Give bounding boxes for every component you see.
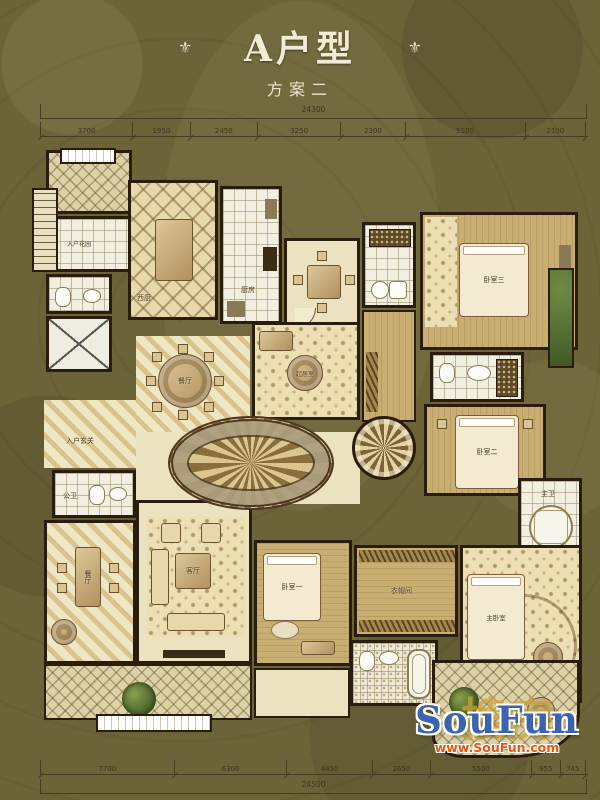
- chair: [317, 251, 327, 261]
- toilet: [439, 363, 455, 383]
- sofa: [167, 613, 225, 631]
- room-dining-long: 餐厅: [44, 520, 136, 664]
- dimension-value: 7700: [40, 760, 174, 775]
- balcony-middle: [254, 668, 350, 718]
- room-closet: 衣帽间: [354, 545, 458, 637]
- room-label: 西厨: [137, 293, 151, 303]
- room-kitchen: 厨房: [220, 186, 282, 324]
- wardrobe: [359, 550, 455, 562]
- chair: [204, 352, 214, 362]
- dimension-value: 2450: [190, 122, 257, 137]
- room-label: 衣帽间: [391, 586, 412, 596]
- range: [263, 247, 277, 271]
- watermark-logo: SouFun: [412, 698, 582, 742]
- room-label: 公卫: [63, 491, 77, 501]
- chair: [152, 352, 162, 362]
- dining-round-table: 餐厅: [158, 354, 212, 408]
- nightstand: [523, 419, 533, 429]
- corner-feature: [51, 619, 77, 645]
- room-label: 起居室: [296, 369, 314, 378]
- chair: [57, 563, 67, 573]
- tv-cabinet: [163, 650, 225, 658]
- chair: [178, 410, 188, 420]
- room-entry-garden: 入户花园: [46, 216, 134, 272]
- sink: [467, 365, 491, 381]
- plant: [122, 682, 156, 716]
- roof-slats: [60, 148, 116, 164]
- dryer: [389, 281, 407, 299]
- piano: [259, 331, 293, 351]
- room-bedroom1: 卧室一: [254, 540, 352, 666]
- hall-entry: [44, 400, 136, 468]
- hall-utility: [362, 310, 416, 422]
- sink: [83, 289, 101, 303]
- room-label: 餐厅: [83, 570, 93, 584]
- nightstand: [437, 419, 447, 429]
- roof-slats: [96, 714, 212, 732]
- chair: [109, 563, 119, 573]
- chair: [178, 344, 188, 354]
- top-dim-segments: 3700195024503250230051002100: [40, 122, 586, 137]
- chair: [109, 583, 119, 593]
- shower: [496, 359, 518, 397]
- room-label: 卧室二: [477, 447, 498, 457]
- room-label: 厨房: [241, 285, 255, 295]
- dimension-value: 1950: [132, 122, 189, 137]
- top-overall-dimension: 24300: [40, 104, 587, 119]
- chair: [214, 376, 224, 386]
- ornament-icon: ⚜: [178, 38, 192, 57]
- title-block: A户型 方案二: [0, 20, 600, 100]
- bottom-overall-dimension: 24500: [40, 779, 587, 794]
- room-label: 餐厅: [178, 376, 192, 386]
- elevator: [46, 316, 112, 372]
- room-label: 客厅: [186, 566, 200, 576]
- storage-shelf: [369, 229, 411, 247]
- fan-medallion: [352, 416, 416, 480]
- page-title: A户型: [0, 20, 600, 72]
- room-label: 入户花园: [67, 239, 91, 248]
- sofa: [151, 549, 169, 605]
- chair: [57, 583, 67, 593]
- room-family: 起居室: [252, 322, 360, 420]
- soufun-watermark: 搜房 SouFun www.SouFun.com: [412, 696, 582, 768]
- room-utility: [362, 222, 416, 308]
- wardrobe: [359, 620, 455, 632]
- room-label: 主卫: [541, 489, 555, 499]
- planter-right: [548, 268, 574, 368]
- sink: [379, 651, 399, 665]
- dimension-value: 2100: [525, 122, 585, 137]
- armchair: [201, 523, 221, 543]
- ornament-icon: ⚜: [408, 38, 422, 57]
- chair: [204, 402, 214, 412]
- room-label: 卧室三: [484, 275, 505, 285]
- dimension-value: 3700: [40, 122, 132, 137]
- page-subtitle: 方案二: [0, 76, 600, 100]
- dresser: [301, 641, 335, 655]
- rug: [425, 217, 457, 327]
- breakfast-table: [307, 265, 341, 299]
- room-label: 卧室一: [282, 582, 303, 592]
- room-bath-shared: [430, 352, 524, 402]
- room-living: 客厅: [136, 500, 252, 664]
- dimension-value: 6300: [174, 760, 287, 775]
- toilet: [89, 485, 105, 505]
- chair: [345, 275, 355, 285]
- chair: [293, 275, 303, 285]
- room-breakfast: [284, 238, 360, 334]
- room-core-bath: [46, 274, 112, 314]
- toilet: [359, 651, 375, 671]
- room-label: 主卧室: [486, 612, 506, 622]
- room-label: 入户玄关: [66, 436, 94, 446]
- room-powder: 公卫: [52, 470, 136, 518]
- dimension-value: 4450: [286, 760, 371, 775]
- wardrobe: [366, 352, 378, 412]
- ottoman: [271, 621, 299, 639]
- oval-medallion: [168, 416, 334, 510]
- armchair: [161, 523, 181, 543]
- toilet: [55, 287, 71, 307]
- dimension-value: 2300: [340, 122, 404, 137]
- staircase: [32, 188, 58, 272]
- dimension-value: 3250: [257, 122, 340, 137]
- floor-plan-page: A户型 方案二 ⚜ ⚜ 24300 3700195024503250230051…: [0, 0, 600, 800]
- fridge: [227, 301, 245, 317]
- chair: [152, 402, 162, 412]
- sink-counter: [265, 199, 277, 219]
- washer: [371, 281, 389, 299]
- room-west-kitchen: 西厨: [128, 180, 218, 320]
- kitchen-island: [155, 219, 193, 281]
- sink: [109, 487, 127, 501]
- round-tub: [529, 505, 573, 549]
- chair: [146, 376, 156, 386]
- dimension-value: 5100: [405, 122, 525, 137]
- chair: [317, 303, 327, 313]
- watermark-url: www.SouFun.com: [412, 740, 582, 755]
